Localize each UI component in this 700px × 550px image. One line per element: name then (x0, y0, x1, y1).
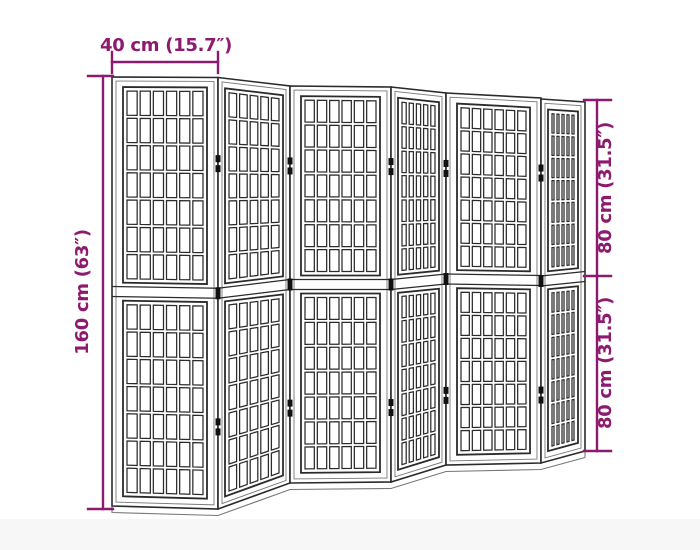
room-divider-illustration: 40 cm (15.7″) 160 cm (63″) 80 cm (31.5″)… (0, 0, 700, 550)
width-dimension: 40 cm (15.7″) (100, 35, 232, 73)
height-dimension-label: 160 cm (63″) (72, 229, 93, 354)
folding-screen-drawing (112, 77, 585, 516)
panel-1 (112, 77, 218, 509)
width-dimension-label: 40 cm (15.7″) (100, 35, 232, 56)
lower-half-dimension-label: 80 cm (31.5″) (595, 297, 616, 429)
panel-6 (541, 99, 585, 463)
height-dimension: 160 cm (63″) (72, 76, 113, 509)
panel-5 (446, 93, 541, 465)
upper-half-dimension-label: 80 cm (31.5″) (595, 122, 616, 254)
half-height-dimensions: 80 cm (31.5″) 80 cm (31.5″) (584, 100, 616, 451)
panel-2 (218, 78, 290, 510)
panel-4 (391, 87, 446, 482)
panel-3 (290, 86, 391, 483)
floor-shadow-band (0, 519, 700, 550)
product-dimension-image: 40 cm (15.7″) 160 cm (63″) 80 cm (31.5″)… (0, 0, 700, 550)
